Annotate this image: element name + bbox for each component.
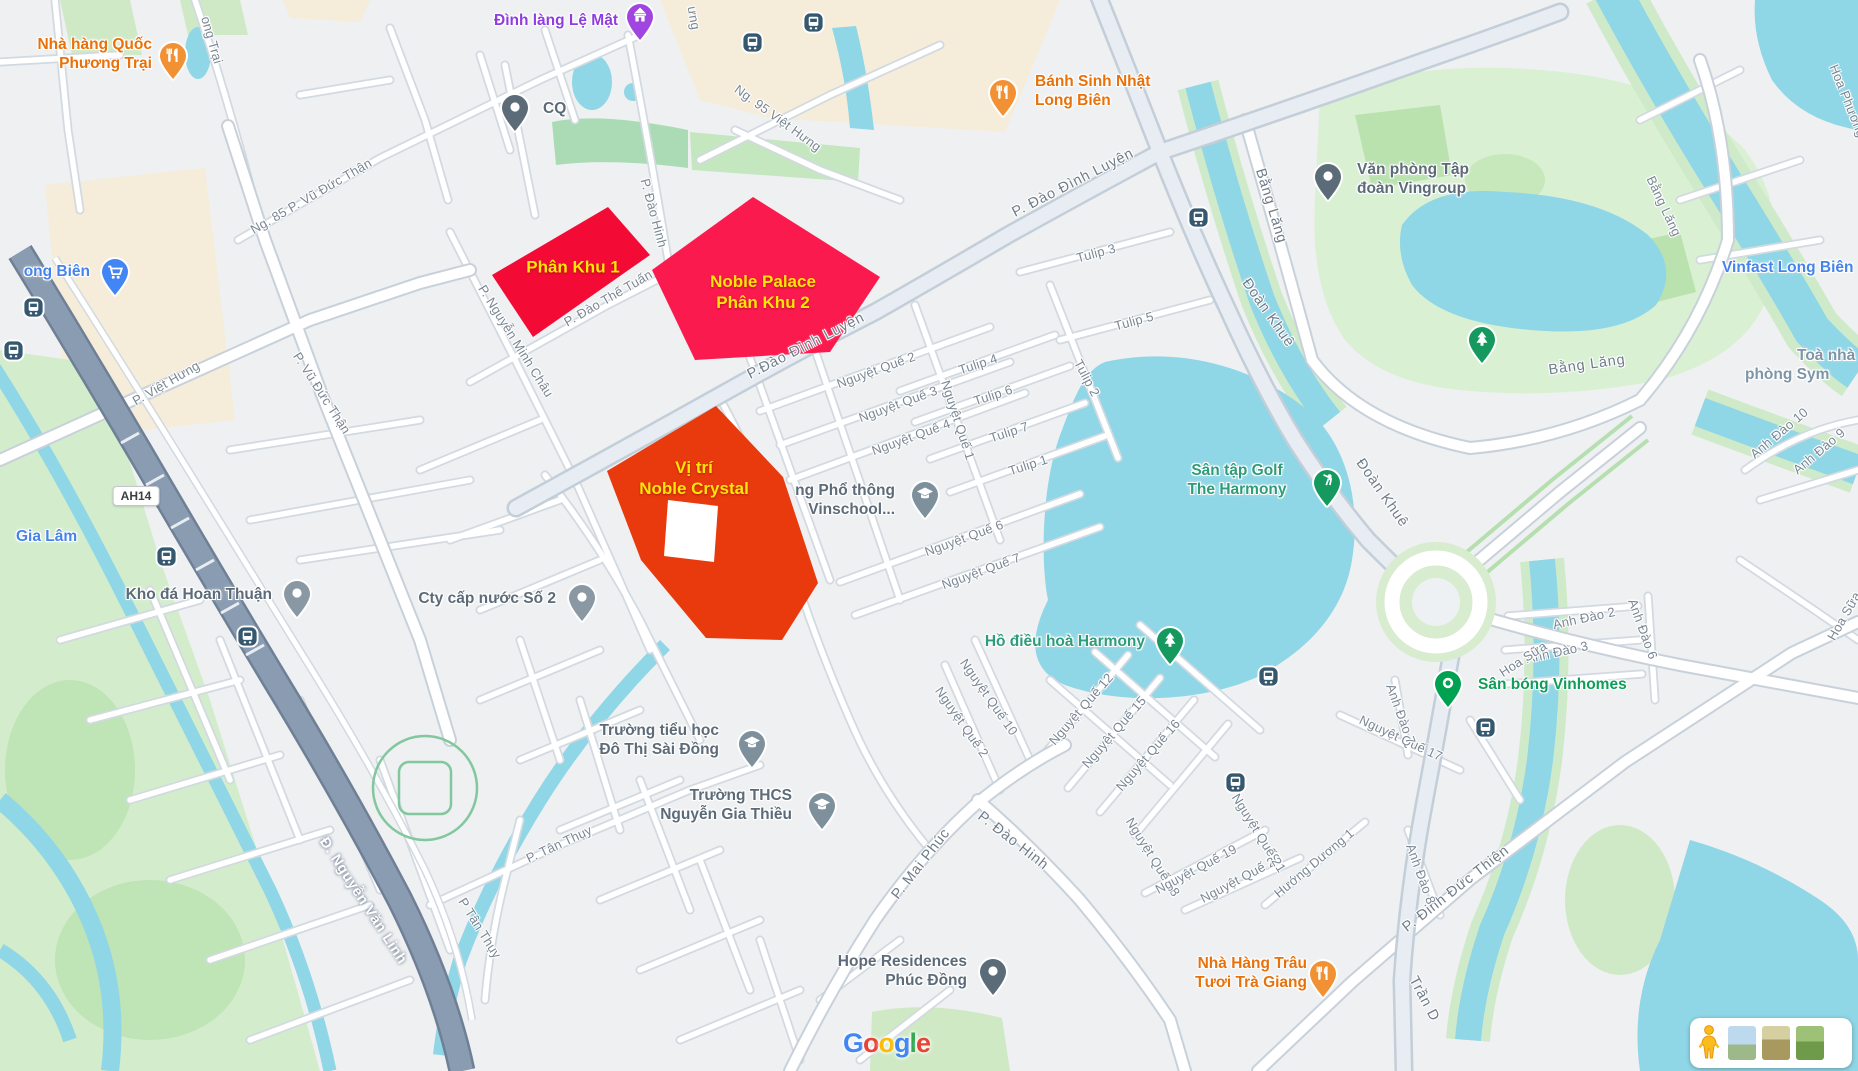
street-label: Tulip 1 xyxy=(1007,452,1050,479)
street-label: Nguyệt Quế 19 xyxy=(1153,841,1240,897)
pin-san-bong-vinhomes[interactable] xyxy=(1433,669,1463,714)
poi-label-cty-cap-nuoc-so-2: Cty cấp nước Số 2 xyxy=(418,589,556,608)
street-label: Nguyệt Quế 16 xyxy=(1113,716,1183,794)
imagery-thumbnail-greenery[interactable] xyxy=(1796,1026,1824,1060)
label-layer: Phân Khu 1Noble PalacePhân Khu 2Vị tríNo… xyxy=(0,0,1858,1071)
imagery-thumbnail-water[interactable] xyxy=(1728,1026,1756,1060)
poi-label-kho-da-hoan-thuan: Kho đá Hoan Thuận xyxy=(126,585,272,604)
street-label: Anh Đào 3 xyxy=(1525,638,1590,666)
street-label: Nguyệt Quế 18 xyxy=(1123,815,1183,899)
poi-label-san-tap-golf-the-harmony: Sân tập GolfThe Harmony xyxy=(1187,461,1286,499)
street-label: Tulip 4 xyxy=(957,351,1000,378)
pin-nha-hang-quoc-phuong-trai[interactable] xyxy=(158,41,188,86)
street-label: Nguyệt Quế 12 xyxy=(1046,670,1116,748)
pin-hope-residences[interactable] xyxy=(978,957,1008,1002)
street-label: Tulip 5 xyxy=(1113,309,1155,334)
street-label: Nguyệt Quế 4 xyxy=(870,416,953,458)
pin-bang-lang-park[interactable] xyxy=(1467,325,1497,370)
street-label: Bằng Lăng xyxy=(1644,174,1685,239)
poi-label-long-bien: ong Biên xyxy=(24,262,90,281)
pin-cty-cap-nuoc-so-2[interactable] xyxy=(567,583,597,628)
street-label: Anh Đào 6 xyxy=(1625,597,1661,662)
street-label: Nguyệt Quế 20 xyxy=(1198,850,1285,906)
bus-stop-icon[interactable] xyxy=(2,339,25,367)
street-label: ong Trại xyxy=(198,15,226,66)
poi-label-banh-sinh-nhat-long-bien: Bánh Sinh NhậtLong Biên xyxy=(1035,72,1150,110)
poi-label-nha-hang-quoc-phuong-trai: Nhà hàng QuốcPhương Trại xyxy=(37,35,152,73)
pin-banh-sinh-nhat-long-bien[interactable] xyxy=(988,78,1018,123)
google-logo-letter: G xyxy=(843,1028,863,1058)
pin-ho-dieu-hoa-harmony[interactable] xyxy=(1155,626,1185,671)
street-label: P. Nguyễn Minh Châu xyxy=(475,282,556,400)
google-logo-letter: e xyxy=(916,1028,930,1058)
street-label: Hướng Dương 1 xyxy=(1271,825,1357,900)
street-label: Nguyệt Quế 10 xyxy=(957,656,1021,738)
street-label: Anh Đào 9 xyxy=(1790,425,1848,477)
street-label: Đ. Nguyễn Văn Linh xyxy=(316,835,410,968)
street-label: P. Đào Hinh xyxy=(638,177,671,249)
street-label: Hoa Sữa xyxy=(1824,589,1858,643)
street-label: P.Đào Đình Luyện xyxy=(745,309,868,382)
street-label: P Tân Thụy xyxy=(455,895,504,961)
bus-stop-icon[interactable] xyxy=(1224,771,1247,799)
pin-san-tap-golf[interactable] xyxy=(1312,468,1342,513)
poi-label-vinfast-long-bien: Vinfast Long Biên xyxy=(1722,258,1853,277)
pin-thcs-nguyen-gia-thieu[interactable] xyxy=(807,791,837,836)
street-label: Hoa Sữa xyxy=(1496,638,1549,680)
poi-label-ho-dieu-hoa-harmony: Hồ điều hoà Harmony xyxy=(985,632,1145,651)
street-label: P. Tân Thụy xyxy=(524,822,595,866)
pin-cq[interactable] xyxy=(500,93,530,138)
street-label: P. Vũ Đức Thận xyxy=(290,349,354,436)
street-label: Anh Đào 2 xyxy=(1552,604,1617,632)
street-label: Nguyệt Quế 2 xyxy=(932,684,992,760)
street-label: ưng xyxy=(685,5,704,31)
bus-stop-icon[interactable] xyxy=(1474,716,1497,744)
pegman-icon[interactable] xyxy=(1696,1024,1722,1062)
poi-label-truong-tieu-hoc-do-thi-sai-dong: Trường tiểu họcĐô Thị Sài Đồng xyxy=(599,721,719,759)
street-label: Bằng Lăng xyxy=(1252,167,1290,246)
street-label: Nguyệt Quế 1 xyxy=(938,378,978,461)
street-label: Nguyệt Quế 2 xyxy=(835,349,918,391)
poi-label-nha-hang-trau-tuoi-tra-giang: Nhà Hàng TrâuTươi Trà Giang xyxy=(1195,954,1307,992)
bus-stop-icon[interactable] xyxy=(802,11,825,39)
google-logo[interactable]: Google xyxy=(843,1028,930,1059)
bus-stop-icon[interactable] xyxy=(1257,665,1280,693)
poi-label-dinh-lang-le-mat: Đình làng Lệ Mật xyxy=(494,11,618,30)
overlay-label-vi-tri-noble-crystal: Vị tríNoble Crystal xyxy=(639,457,749,499)
street-label: Bằng Lăng xyxy=(1548,352,1627,379)
bus-stop-icon[interactable] xyxy=(741,31,764,59)
street-label: Anh Đào 10 xyxy=(1747,405,1811,462)
street-label: P. Đinh Đức Thiện xyxy=(1400,842,1513,935)
street-label: Hoa Phương 3 xyxy=(1827,62,1858,149)
road-badge-ah14: AH14 xyxy=(113,486,160,506)
poi-label-toa-nha-phong-sym-2: phòng Sym xyxy=(1745,365,1829,384)
pin-van-phong-vingroup[interactable] xyxy=(1313,162,1343,207)
pin-long-bien-market[interactable] xyxy=(100,257,130,302)
imagery-thumbnail-terrain[interactable] xyxy=(1762,1026,1790,1060)
pin-vinschool[interactable] xyxy=(910,480,940,525)
street-label: Tulip 2 xyxy=(1071,357,1103,399)
street-label: Nguyệt Quế 17 xyxy=(1357,712,1445,764)
bus-stop-icon[interactable] xyxy=(22,296,45,324)
poi-label-san-bong-vinhomes: Sân bóng Vinhomes xyxy=(1478,675,1627,694)
pin-nha-hang-trau-tuoi[interactable] xyxy=(1308,959,1338,1004)
street-label: Tulip 7 xyxy=(988,419,1031,446)
google-logo-letter: o xyxy=(863,1028,879,1058)
poi-label-truong-thcs-nguyen-gia-thieu: Trường THCSNguyễn Gia Thiều xyxy=(660,786,792,824)
street-label: Nguyệt Quế 21 xyxy=(1229,791,1289,875)
google-logo-letter: g xyxy=(894,1028,910,1058)
overlay-label-phan-khu-1: Phân Khu 1 xyxy=(526,257,620,278)
street-label: Nguyệt Quế 3 xyxy=(857,383,940,425)
street-label: Anh Đào 8 xyxy=(1403,842,1439,907)
street-label: Đoàn Khuê xyxy=(1239,276,1298,351)
street-label: P. Đào Hinh xyxy=(975,808,1052,873)
overlay-label-noble-palace-phan-khu-2: Noble PalacePhân Khu 2 xyxy=(710,271,816,313)
google-logo-letter: o xyxy=(879,1028,895,1058)
street-label: Trần D xyxy=(1406,974,1443,1024)
street-label: Ng. 95 Việt Hưng xyxy=(732,82,825,155)
bus-stop-icon[interactable] xyxy=(1187,206,1210,234)
poi-label-truong-vinschool: ng Phổ thôngVinschool... xyxy=(795,481,895,519)
bus-stop-icon[interactable] xyxy=(155,545,178,573)
pin-kho-da-hoan-thuan[interactable] xyxy=(282,579,312,624)
poi-label-van-phong-tap-doan-vingroup: Văn phòng Tậpđoàn Vingroup xyxy=(1357,160,1469,198)
poi-label-hope-residences-phuc-dong: Hope ResidencesPhúc Đồng xyxy=(838,952,967,990)
street-label: P. Đào Thế Tuấn xyxy=(561,267,655,330)
street-label: P. Việt Hưng xyxy=(130,358,202,408)
street-label: P. Mai Phúc xyxy=(888,826,953,903)
poi-label-cq: CQ xyxy=(543,99,566,118)
pin-tieu-hoc-do-thi-sai-dong[interactable] xyxy=(737,729,767,774)
map-canvas[interactable]: Phân Khu 1Noble PalacePhân Khu 2Vị tríNo… xyxy=(0,0,1858,1071)
street-label: Nguyệt Quế 7 xyxy=(940,550,1023,592)
street-label: Đoàn Khuê xyxy=(1353,456,1412,531)
street-label: P. Đào Đình Luyện xyxy=(1010,145,1137,220)
pin-dinh-lang-le-mat[interactable] xyxy=(625,2,655,47)
street-label: Nguyệt Quế 15 xyxy=(1079,693,1149,771)
poi-label-gia-lam: Gia Lâm xyxy=(16,527,77,546)
street-label: Anh Đào 7 xyxy=(1383,682,1419,747)
street-label: Ng. 85 P. Vũ Đức Thận xyxy=(248,155,375,237)
imagery-control-panel xyxy=(1690,1018,1852,1068)
street-label: Tulip 6 xyxy=(972,382,1015,409)
bus-stop-icon[interactable] xyxy=(236,625,259,653)
poi-label-toa-nha-phong-sym-1: Toà nhà xyxy=(1797,346,1855,365)
street-label: Tulip 3 xyxy=(1075,241,1117,266)
